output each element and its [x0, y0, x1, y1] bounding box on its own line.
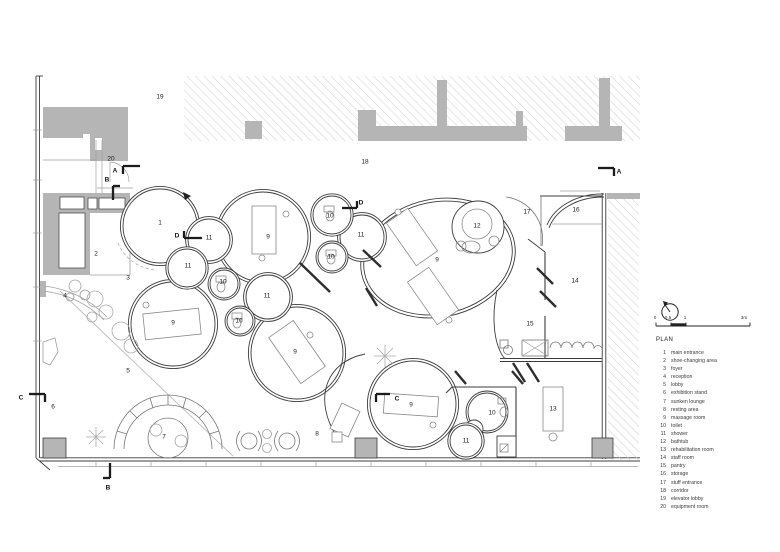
legend-item-label: storage — [671, 470, 776, 478]
legend-item-label: equipment room — [671, 503, 776, 511]
legend-item-number: 13 — [656, 446, 666, 454]
legend-item-number: 18 — [656, 487, 666, 495]
legend-item-label: shower — [671, 430, 776, 438]
legend-item-number: 15 — [656, 462, 666, 470]
legend-item: 3foyer — [656, 365, 776, 373]
legend-item-number: 4 — [656, 373, 666, 381]
legend-item-number: 14 — [656, 454, 666, 462]
legend-item-number: 1 — [656, 349, 666, 357]
legend-item: 6exhibition stand — [656, 389, 776, 397]
floor-plan-sheet: 1234567899999101010101011111111111213141… — [0, 0, 780, 552]
legend-item: 5lobby — [656, 381, 776, 389]
legend-item-label: exhibition stand — [671, 389, 776, 397]
legend-item-label: shoe-changing area — [671, 357, 776, 365]
sunken-lounge — [114, 395, 222, 458]
legend-item: 17stuff entrance — [656, 479, 776, 487]
left-core — [40, 193, 130, 301]
legend-item: 4reception — [656, 373, 776, 381]
scale-bar — [656, 323, 750, 327]
top-left-core — [43, 107, 129, 193]
legend-item: 14staff room — [656, 454, 776, 462]
legend-item-number: 2 — [656, 357, 666, 365]
legend-item-label: resting area — [671, 406, 776, 414]
legend-item: 12bathtub — [656, 438, 776, 446]
legend-item-number: 7 — [656, 398, 666, 406]
legend-item-label: corridor — [671, 487, 776, 495]
legend-item: 7sunken lounge — [656, 398, 776, 406]
legend-item: 16storage — [656, 470, 776, 478]
legend-item: 11shower — [656, 430, 776, 438]
right-hatched-strip — [608, 199, 639, 460]
legend-item: 18corridor — [656, 487, 776, 495]
legend-item: 9massage room — [656, 414, 776, 422]
legend-item-number: 8 — [656, 406, 666, 414]
legend-item-label: bathtub — [671, 438, 776, 446]
legend-item-number: 20 — [656, 503, 666, 511]
legend-title: PLAN — [656, 337, 776, 343]
legend-item-number: 3 — [656, 365, 666, 373]
legend-item-number: 16 — [656, 470, 666, 478]
plan-legend: PLAN 1main entrance2shoe-changing area3f… — [656, 337, 776, 511]
top-right-wall-cap — [607, 193, 640, 199]
right-rooms-walls — [494, 194, 604, 362]
legend-item-number: 5 — [656, 381, 666, 389]
legend-item: 19elevator lobby — [656, 495, 776, 503]
legend-item-number: 12 — [656, 438, 666, 446]
legend-item-label: massage room — [671, 414, 776, 422]
legend-item-label: pantry — [671, 462, 776, 470]
legend-item: 10toilet — [656, 422, 776, 430]
legend-item-label: reception — [671, 373, 776, 381]
legend-item-label: elevator lobby — [671, 495, 776, 503]
legend-item: 15pantry — [656, 462, 776, 470]
legend-item-label: lobby — [671, 381, 776, 389]
legend-item-label: stuff entrance — [671, 479, 776, 487]
legend-item-number: 9 — [656, 414, 666, 422]
tree-symbol — [374, 345, 396, 367]
legend-item-label: sunken lounge — [671, 398, 776, 406]
legend-item-number: 11 — [656, 430, 666, 438]
north-arrow-icon — [662, 301, 678, 320]
legend-item-number: 10 — [656, 422, 666, 430]
legend-item-label: foyer — [671, 365, 776, 373]
tree-symbol — [86, 427, 106, 447]
top-hatched-band — [184, 76, 640, 141]
legend-item: 1main entrance — [656, 349, 776, 357]
legend-rows: 1main entrance2shoe-changing area3foyer4… — [656, 349, 776, 511]
legend-item: 8resting area — [656, 406, 776, 414]
legend-item-number: 6 — [656, 389, 666, 397]
columns — [43, 438, 613, 458]
legend-item-number: 17 — [656, 479, 666, 487]
lounge-chairs — [237, 430, 300, 453]
legend-item-label: toilet — [671, 422, 776, 430]
legend-item-number: 19 — [656, 495, 666, 503]
legend-item-label: staff room — [671, 454, 776, 462]
legend-item-label: main entrance — [671, 349, 776, 357]
legend-item: 13rehabilitation room — [656, 446, 776, 454]
legend-item: 2shoe-changing area — [656, 357, 776, 365]
legend-item-label: rehabilitation room — [671, 446, 776, 454]
legend-item: 20equipment room — [656, 503, 776, 511]
